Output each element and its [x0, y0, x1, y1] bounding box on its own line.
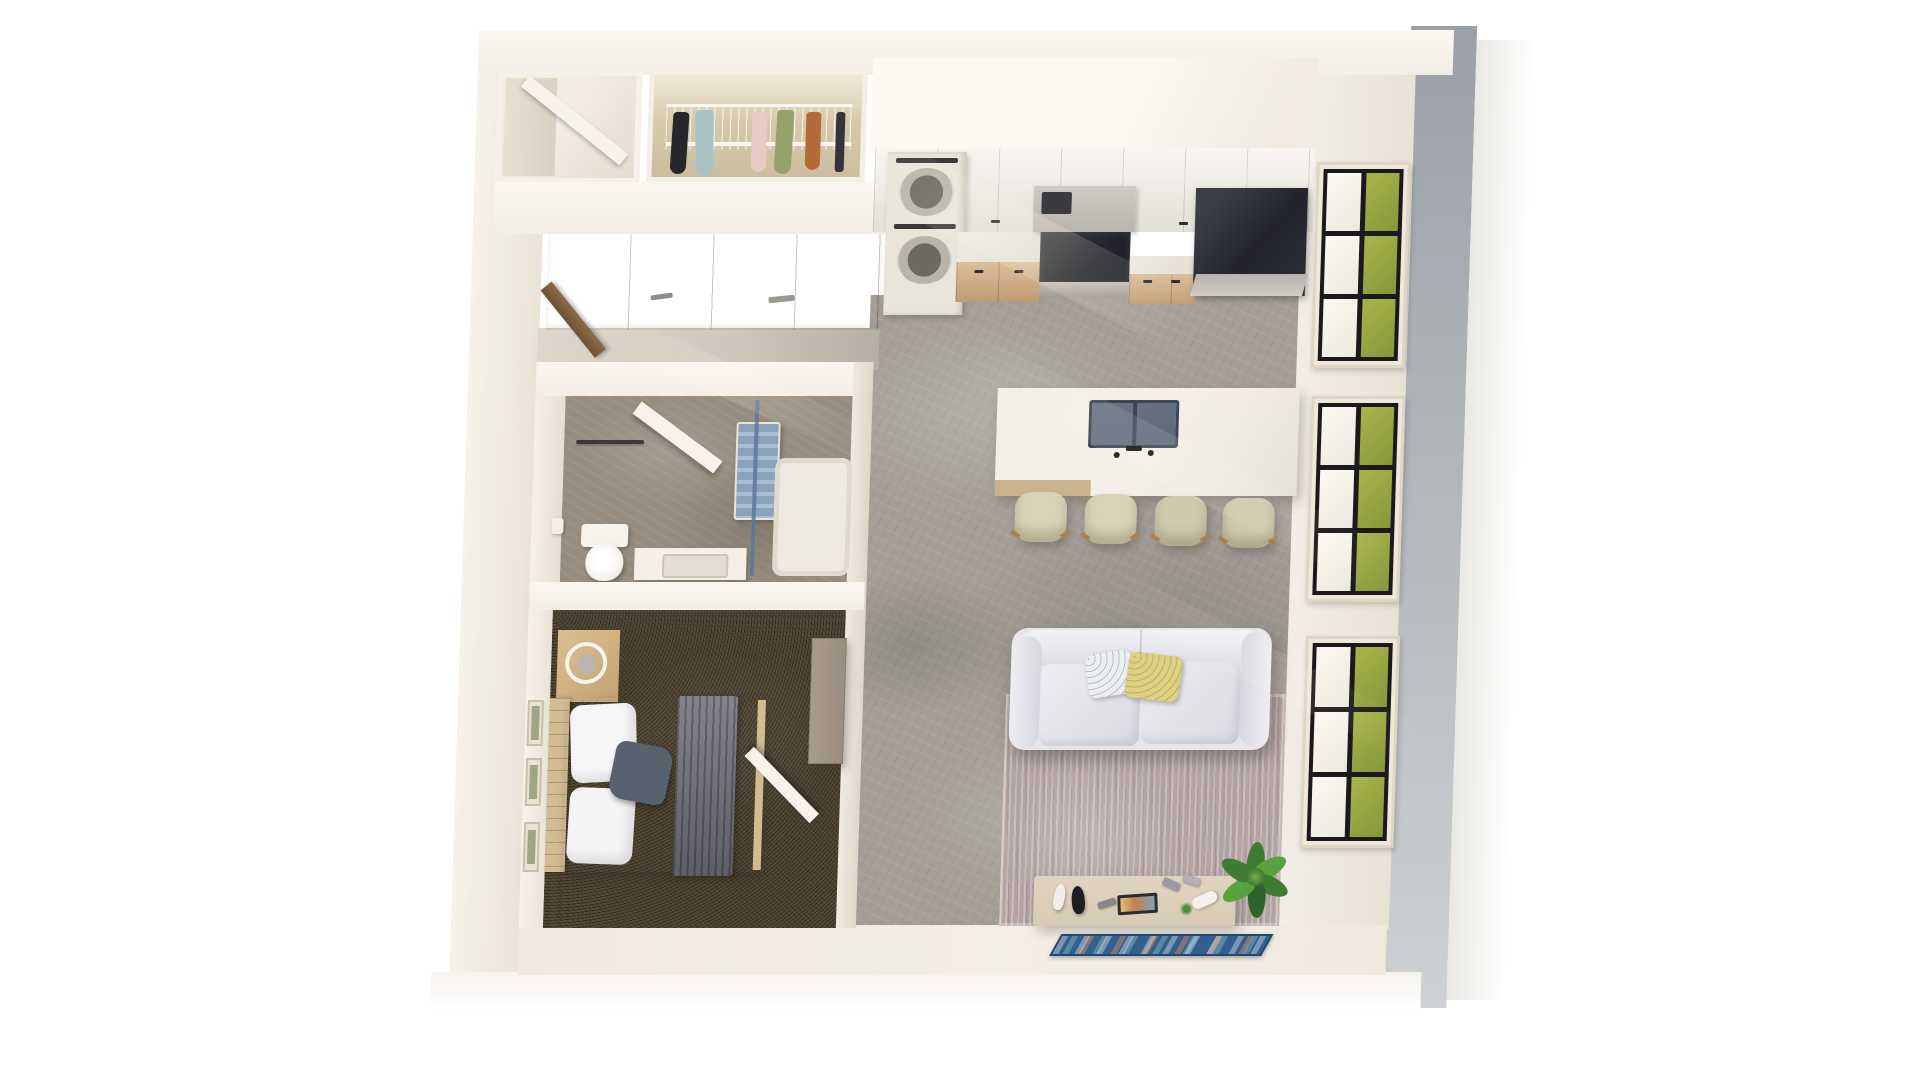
washer-controls — [894, 224, 956, 229]
window-1 — [1310, 162, 1410, 368]
toilet-paper-holder — [551, 518, 564, 534]
garment-4 — [773, 110, 794, 175]
sofa-arm-right — [1239, 632, 1273, 746]
wall-art-frame-3 — [523, 822, 541, 872]
garment-3 — [751, 112, 768, 172]
garment-2 — [695, 110, 713, 177]
refrigerator — [1193, 188, 1308, 296]
wall-art-frame-2 — [525, 758, 543, 806]
window-pane — [1364, 173, 1399, 231]
bar-stool-2 — [1084, 494, 1138, 544]
art-print — [531, 706, 540, 740]
base-handle-3 — [1143, 280, 1152, 283]
window-pane — [1355, 533, 1390, 591]
white-flower-decor — [1190, 889, 1219, 911]
hood-vent — [1041, 192, 1072, 214]
wall-art-frame-1 — [527, 700, 544, 746]
faucet-handle-right — [1148, 450, 1154, 456]
window-pane — [1351, 712, 1386, 772]
counter-right — [1129, 256, 1196, 274]
cabinet-handle-2 — [991, 220, 1000, 223]
island-sink — [1088, 400, 1180, 448]
washer-door — [896, 236, 953, 284]
window-pane — [1320, 407, 1355, 465]
hall-wall-band — [493, 182, 887, 234]
bathroom-left-wall — [530, 396, 566, 582]
window-3-glass — [1307, 643, 1393, 841]
potted-plant — [1217, 842, 1295, 920]
kitchen-island — [994, 388, 1299, 496]
bar-stool-3 — [1154, 496, 1208, 546]
window-pane — [1357, 470, 1392, 528]
shower-pan — [772, 458, 853, 576]
base-handle-2 — [1014, 270, 1023, 273]
runner-rug — [1049, 934, 1273, 956]
accent-pillow — [606, 739, 675, 806]
bar-stool-4 — [1222, 498, 1276, 548]
apartment-plan — [0, 0, 1920, 1080]
white-vase — [1052, 883, 1067, 910]
refrigerator-bottom-face — [1190, 274, 1308, 296]
window-pane — [1322, 299, 1357, 357]
bedroom-top-wall — [529, 582, 865, 612]
bar-stool-1 — [1014, 492, 1068, 542]
window-pane — [1311, 777, 1346, 837]
yellow-pillow — [1124, 651, 1184, 703]
window-1-glass — [1318, 169, 1404, 361]
window-pane — [1353, 647, 1388, 707]
closet-door-pull-right — [768, 295, 794, 304]
toilet-bowl — [585, 543, 624, 581]
window-pane — [1359, 407, 1394, 465]
vanity-sink-basin — [662, 554, 729, 578]
black-vase — [1071, 885, 1086, 914]
window-pane — [1315, 647, 1350, 707]
hall-closet-doors — [546, 234, 883, 330]
closet-door-pull-left — [650, 292, 672, 300]
window-pane — [1313, 712, 1348, 772]
dresser — [808, 638, 847, 764]
bathroom-top-wall — [535, 362, 871, 398]
media-console — [1033, 876, 1237, 926]
dryer-door — [898, 168, 955, 216]
towel-bar — [576, 440, 644, 444]
window-3 — [1299, 636, 1400, 848]
garment-6 — [835, 112, 846, 172]
phone-item-1 — [1161, 877, 1181, 892]
phone-item-2 — [1182, 873, 1202, 886]
tray-art — [1120, 896, 1155, 912]
window-2-glass — [1312, 403, 1398, 595]
window-pane — [1316, 533, 1351, 591]
bed — [545, 698, 769, 874]
faucet-handle-left — [1114, 452, 1120, 458]
window-pane — [1360, 299, 1395, 357]
island-faucet — [1126, 446, 1142, 451]
window-pane — [1326, 173, 1361, 231]
remote-control — [1097, 897, 1116, 909]
base-handle-1 — [974, 270, 983, 273]
small-green-sprig — [1179, 902, 1193, 916]
window-pane — [1349, 777, 1384, 837]
floorplan-render — [0, 0, 1920, 1080]
decor-tray — [1117, 893, 1158, 916]
range-stove — [1039, 232, 1131, 284]
bathroom-vanity — [634, 548, 747, 580]
art-print — [529, 765, 538, 799]
nightstand — [556, 630, 620, 702]
counter-left — [957, 232, 1043, 262]
outer-wall-bottom — [430, 972, 1421, 1010]
window-pane — [1362, 236, 1397, 294]
base-handle-4 — [1171, 280, 1180, 283]
sofa — [1008, 628, 1272, 750]
kitchen-ceiling-soffit — [870, 58, 1318, 154]
base-cabinets-right — [1128, 274, 1195, 304]
gray-throw-blanket — [672, 696, 738, 876]
entry-vestibule — [494, 70, 643, 184]
garment-5 — [805, 112, 822, 170]
window-pane — [1318, 470, 1353, 528]
sofa-arm-left — [1008, 636, 1042, 748]
window-pane — [1324, 236, 1359, 294]
range-hood-microwave — [1033, 186, 1136, 232]
cabinet-handle-4 — [1179, 222, 1188, 225]
base-cabinets-left — [956, 262, 1042, 302]
walkin-closet — [646, 70, 868, 182]
garment-1 — [669, 112, 689, 175]
sink-divider — [1132, 403, 1137, 445]
range-drawer — [1039, 282, 1130, 298]
window-2 — [1305, 396, 1405, 602]
art-print — [527, 830, 536, 864]
dryer-controls — [896, 158, 958, 163]
washer-dryer-stack — [883, 152, 967, 315]
